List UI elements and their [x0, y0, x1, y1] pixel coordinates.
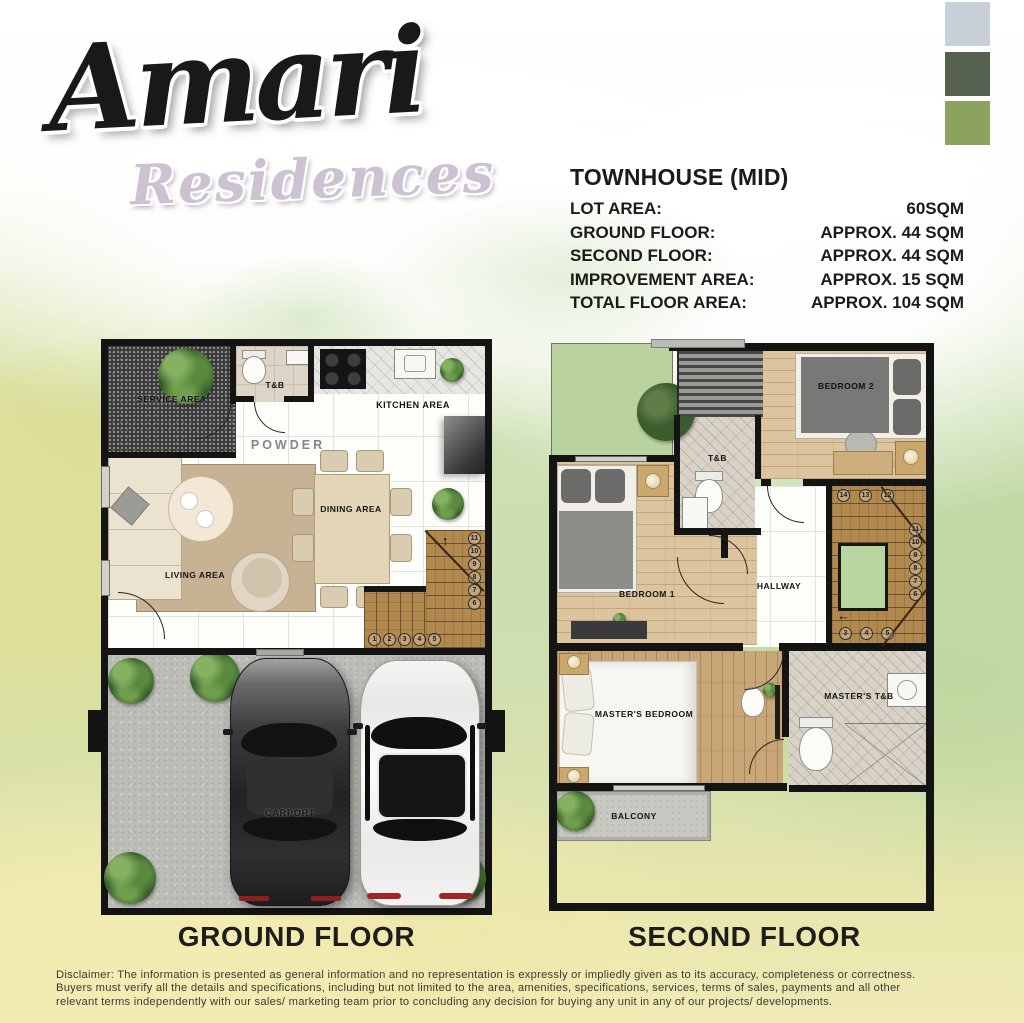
tb-door-arc — [254, 402, 285, 433]
stair-step-number: 12 — [881, 489, 894, 502]
masters-bedroom-label: MASTER'S BEDROOM — [594, 709, 694, 719]
spec-value: APPROX. 44 SQM — [820, 221, 964, 245]
wall — [549, 903, 934, 911]
bed1-blanket — [559, 511, 633, 589]
carport-label: CARPORT — [231, 809, 349, 819]
roof-slats — [677, 351, 763, 417]
cabinet — [444, 416, 485, 474]
second-floor-caption: SECOND FLOOR — [549, 921, 940, 953]
wall — [761, 479, 771, 486]
toilet-icon — [799, 727, 833, 771]
wall — [674, 528, 761, 535]
wall — [236, 396, 254, 402]
wall — [826, 486, 832, 647]
desk — [571, 621, 647, 639]
ground-tb-label: T&B — [236, 380, 314, 390]
armchair-cushion — [242, 558, 282, 598]
bedroom2-label: BEDROOM 2 — [801, 381, 891, 391]
dining-chair — [320, 450, 348, 472]
stair-step-number: 13 — [859, 489, 872, 502]
disclaimer: Disclaimer: The information is presented… — [56, 969, 968, 1009]
second-tb-label: T&B — [680, 453, 755, 463]
stove-icon — [320, 349, 366, 389]
dining-chair — [390, 534, 412, 562]
car-taillight — [239, 896, 269, 901]
spec-label: GROUND FLOOR: — [570, 221, 715, 245]
spec-value: APPROX. 15 SQM — [820, 268, 964, 292]
wall — [308, 346, 314, 402]
bed1-pillow — [561, 469, 591, 503]
car-sunroof — [377, 753, 467, 819]
car-white — [360, 660, 480, 906]
stair-step-number: 11 — [909, 523, 922, 536]
stair-step-number: 3 — [398, 633, 411, 646]
spec-row-improvement-area: IMPROVEMENT AREA: APPROX. 15 SQM — [570, 268, 964, 292]
bed1-pillow — [595, 469, 625, 503]
dining-chair — [320, 586, 348, 608]
bed2-pillow — [893, 399, 921, 435]
brand-logo-title: Amari — [44, 0, 426, 163]
lamp-icon — [645, 473, 661, 489]
second-floor-plan: BEDROOM 2 T&B BEDROOM 1 — [549, 339, 940, 915]
shower-area — [845, 723, 926, 786]
spec-label: SECOND FLOOR: — [570, 244, 713, 268]
ledge — [651, 339, 745, 348]
stair-step-number: 4 — [413, 633, 426, 646]
sink-icon — [682, 497, 708, 529]
wall — [755, 415, 761, 479]
tv-panel — [775, 685, 780, 739]
service-area-label: SERVICE AREA — [108, 394, 236, 404]
plate — [196, 510, 214, 528]
wall — [779, 643, 933, 651]
ground-floor-plan: SERVICE AREA T&B KITCHEN AREA POWDER — [101, 339, 492, 915]
masters-pillow — [561, 712, 595, 756]
powder-label: POWDER — [236, 440, 340, 450]
stair-step-number: 1 — [368, 633, 381, 646]
car-side-window — [470, 725, 475, 821]
spec-label: TOTAL FLOOR AREA: — [570, 291, 747, 315]
stair-step-number: 5 — [428, 633, 441, 646]
living-label: LIVING AREA — [152, 570, 238, 580]
stair-step-number: 7 — [909, 575, 922, 588]
brand-swatch-1 — [943, 0, 992, 48]
sink-icon — [286, 350, 310, 365]
gate-post — [88, 710, 101, 752]
car-mirror — [347, 729, 357, 735]
wall — [364, 586, 426, 592]
stair-step-number: 10 — [468, 545, 481, 558]
carport-door — [256, 649, 304, 656]
stair-step-number: 5 — [881, 627, 894, 640]
bed2-pillow — [893, 359, 921, 395]
coffee-table — [168, 476, 234, 542]
window — [575, 456, 647, 462]
stair-plant — [432, 488, 464, 520]
spec-row-lot-area: LOT AREA: 60SQM — [570, 197, 964, 221]
gate-post — [492, 710, 505, 752]
wall — [108, 452, 236, 458]
car-rear-window — [243, 817, 337, 841]
car-taillight — [311, 896, 341, 901]
dining-label: DINING AREA — [314, 504, 388, 514]
car-rear-window — [373, 819, 467, 841]
masters-tb-label: MASTER'S T&B — [817, 691, 901, 701]
car-taillight — [439, 893, 473, 899]
car-dark: CARPORT — [230, 658, 350, 906]
wall — [549, 643, 727, 651]
spec-value: APPROX. 104 SQM — [811, 291, 964, 315]
dining-table — [314, 474, 390, 584]
wall — [549, 455, 557, 911]
stairs-up-arrow-icon: ↑ — [442, 534, 449, 547]
stair-step-number: 14 — [837, 489, 850, 502]
disclaimer-line: relevant terms independently with our sa… — [56, 996, 968, 1009]
balcony-label: BALCONY — [589, 811, 679, 821]
bedroom1-label: BEDROOM 1 — [597, 589, 697, 599]
spec-value: APPROX. 44 SQM — [820, 244, 964, 268]
car-taillight — [367, 893, 401, 899]
spec-row-ground-floor: GROUND FLOOR: APPROX. 44 SQM — [570, 221, 964, 245]
car-mirror — [477, 723, 487, 729]
kitchen-sink-basin — [404, 355, 426, 372]
ground-floor-caption: GROUND FLOOR — [101, 921, 492, 953]
spec-label: LOT AREA: — [570, 197, 662, 221]
stair-step-number: 9 — [468, 558, 481, 571]
lamp-icon — [567, 655, 581, 669]
stair-step-number: 4 — [860, 627, 873, 640]
desk — [833, 451, 893, 475]
brand-swatch-2 — [943, 50, 992, 98]
window — [101, 466, 110, 508]
stair-step-number: 8 — [909, 562, 922, 575]
lamp-icon — [903, 449, 919, 465]
flyer-page: Amari Residences TOWNHOUSE (MID) LOT ARE… — [0, 0, 1024, 1023]
stair-step-number: 3 — [839, 627, 852, 640]
dining-chair — [292, 534, 314, 562]
stair-void — [838, 543, 888, 611]
wall — [789, 785, 933, 792]
unit-specs: TOWNHOUSE (MID) LOT AREA: 60SQM GROUND F… — [570, 164, 964, 315]
car-mirror — [353, 723, 363, 729]
brand-swatch-3 — [943, 99, 992, 147]
stair-step-number: 7 — [468, 584, 481, 597]
disclaimer-line: Buyers must verify all the details and s… — [56, 982, 968, 995]
stair-step-number: 6 — [909, 588, 922, 601]
unit-type-title: TOWNHOUSE (MID) — [570, 164, 964, 191]
wall — [803, 479, 926, 486]
disclaimer-line: Disclaimer: The information is presented… — [56, 969, 968, 982]
balcony-door — [613, 785, 705, 791]
hallway-label: HALLWAY — [727, 581, 831, 591]
window — [101, 560, 110, 596]
carport-shrub — [104, 852, 156, 904]
carport-shrub — [108, 658, 154, 704]
vanity-fixture — [741, 687, 765, 717]
stair-step-number: 9 — [909, 549, 922, 562]
stair-step-number: 6 — [468, 597, 481, 610]
stair-step-number: 2 — [383, 633, 396, 646]
car-windshield — [371, 717, 467, 749]
spec-value: 60SQM — [906, 197, 964, 221]
plate — [180, 492, 198, 510]
car-side-window — [365, 725, 370, 821]
dining-chair — [292, 488, 314, 516]
car-windshield — [241, 723, 337, 757]
wall — [782, 651, 789, 737]
stair-step-number: 8 — [468, 571, 481, 584]
spec-label: IMPROVEMENT AREA: — [570, 268, 755, 292]
stairs-down-arrow-icon: ← — [837, 609, 850, 622]
stair-step-number: 11 — [468, 532, 481, 545]
lamp-icon — [567, 769, 581, 783]
brand-logo-subtitle: Residences — [129, 140, 496, 218]
wall — [674, 415, 680, 532]
spec-row-second-floor: SECOND FLOOR: APPROX. 44 SQM — [570, 244, 964, 268]
kitchen-label: KITCHEN AREA — [348, 400, 478, 410]
car-roof — [247, 759, 333, 815]
wall — [727, 643, 743, 651]
kitchen-plant — [440, 358, 464, 382]
dining-chair — [390, 488, 412, 516]
wall — [284, 396, 314, 402]
dining-chair — [356, 450, 384, 472]
bed2-blanket — [801, 357, 889, 433]
car-mirror — [223, 729, 233, 735]
spec-row-total-floor-area: TOTAL FLOOR AREA: APPROX. 104 SQM — [570, 291, 964, 315]
wall — [926, 343, 934, 911]
stair-step-number: 10 — [909, 536, 922, 549]
